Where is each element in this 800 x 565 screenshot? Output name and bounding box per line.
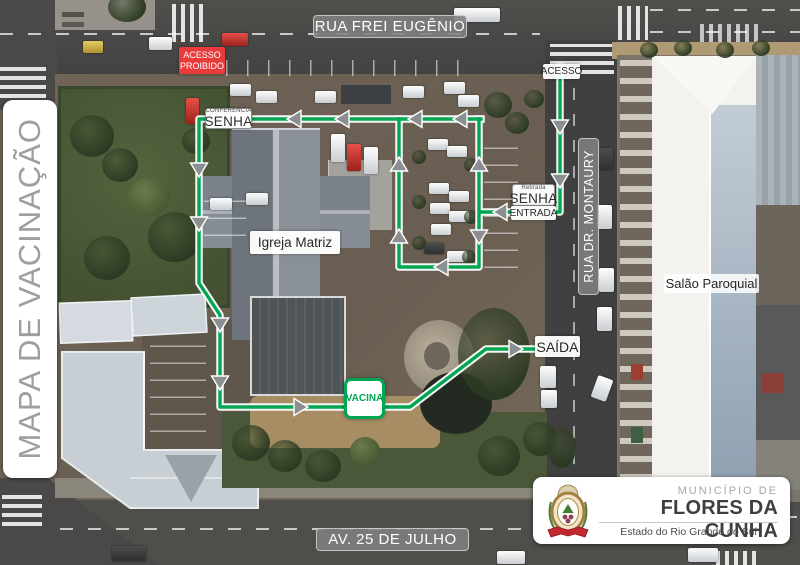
arrow-right-icon [509, 341, 523, 358]
arrow-left-icon [335, 111, 349, 128]
street-label-right: RUA DR. MONTAURY [578, 138, 599, 295]
arrow-left-icon [453, 111, 467, 128]
arrow-left-icon [434, 259, 448, 276]
arrow-down-icon [212, 376, 229, 390]
arrow-down-icon [471, 230, 488, 244]
logo-divider [599, 522, 778, 523]
street-label-top: RUA FREI EUGÊNIO [313, 15, 467, 38]
entrada-label: ENTRADA [511, 206, 556, 220]
route-arrows [191, 111, 569, 416]
coat-of-arms-icon [545, 480, 591, 540]
conferencia-big-text: SENHA [205, 115, 253, 129]
arrow-down-icon [212, 318, 229, 332]
acesso-proibido-line2: PROIBIDO [180, 61, 224, 72]
igreja-matriz-label: Igreja Matriz [250, 231, 340, 254]
retirada-small-text: Retirada [521, 185, 545, 191]
arrow-down-icon [191, 217, 208, 231]
retirada-senha-label: Retirada SENHA [512, 184, 555, 206]
arrow-up-icon [391, 229, 408, 243]
retirada-big-text: SENHA [510, 192, 558, 206]
vaccination-map: RUA FREI EUGÊNIO AV. 25 DE JULHO RUA DR.… [0, 0, 800, 565]
street-label-bottom: AV. 25 DE JULHO [316, 528, 469, 551]
vacina-label: VACINA [344, 378, 385, 419]
salao-paroquial-label: Salão Paroquial [664, 274, 759, 293]
arrow-left-icon [287, 111, 301, 128]
conferencia-senha-label: CONFERÊNCIA SENHA [205, 108, 252, 129]
logo-municipio-de: MUNICÍPIO DE [599, 485, 778, 497]
arrow-down-icon [552, 120, 569, 134]
acesso-label: ACESSO [543, 64, 580, 79]
arrow-up-icon [471, 157, 488, 171]
municipality-logo: MUNICÍPIO DE FLORES DA CUNHA Estado do R… [533, 477, 790, 544]
arrow-down-icon [191, 163, 208, 177]
acesso-proibido-line1: ACESSO [183, 50, 221, 61]
arrow-left-icon [408, 111, 422, 128]
arrow-left-icon [493, 204, 507, 221]
street-label-right-text: RUA DR. MONTAURY [582, 150, 596, 283]
arrow-right-icon [294, 399, 308, 416]
map-title-text: MAPA DE VACINAÇÃO [12, 118, 48, 459]
logo-state-name: Estado do Rio Grande do Sul [599, 526, 778, 538]
map-title-banner: MAPA DE VACINAÇÃO [3, 100, 57, 478]
acesso-proibido-label: ACESSO PROIBIDO [179, 47, 225, 74]
arrow-up-icon [391, 157, 408, 171]
saida-label: SAÍDA [535, 336, 580, 357]
